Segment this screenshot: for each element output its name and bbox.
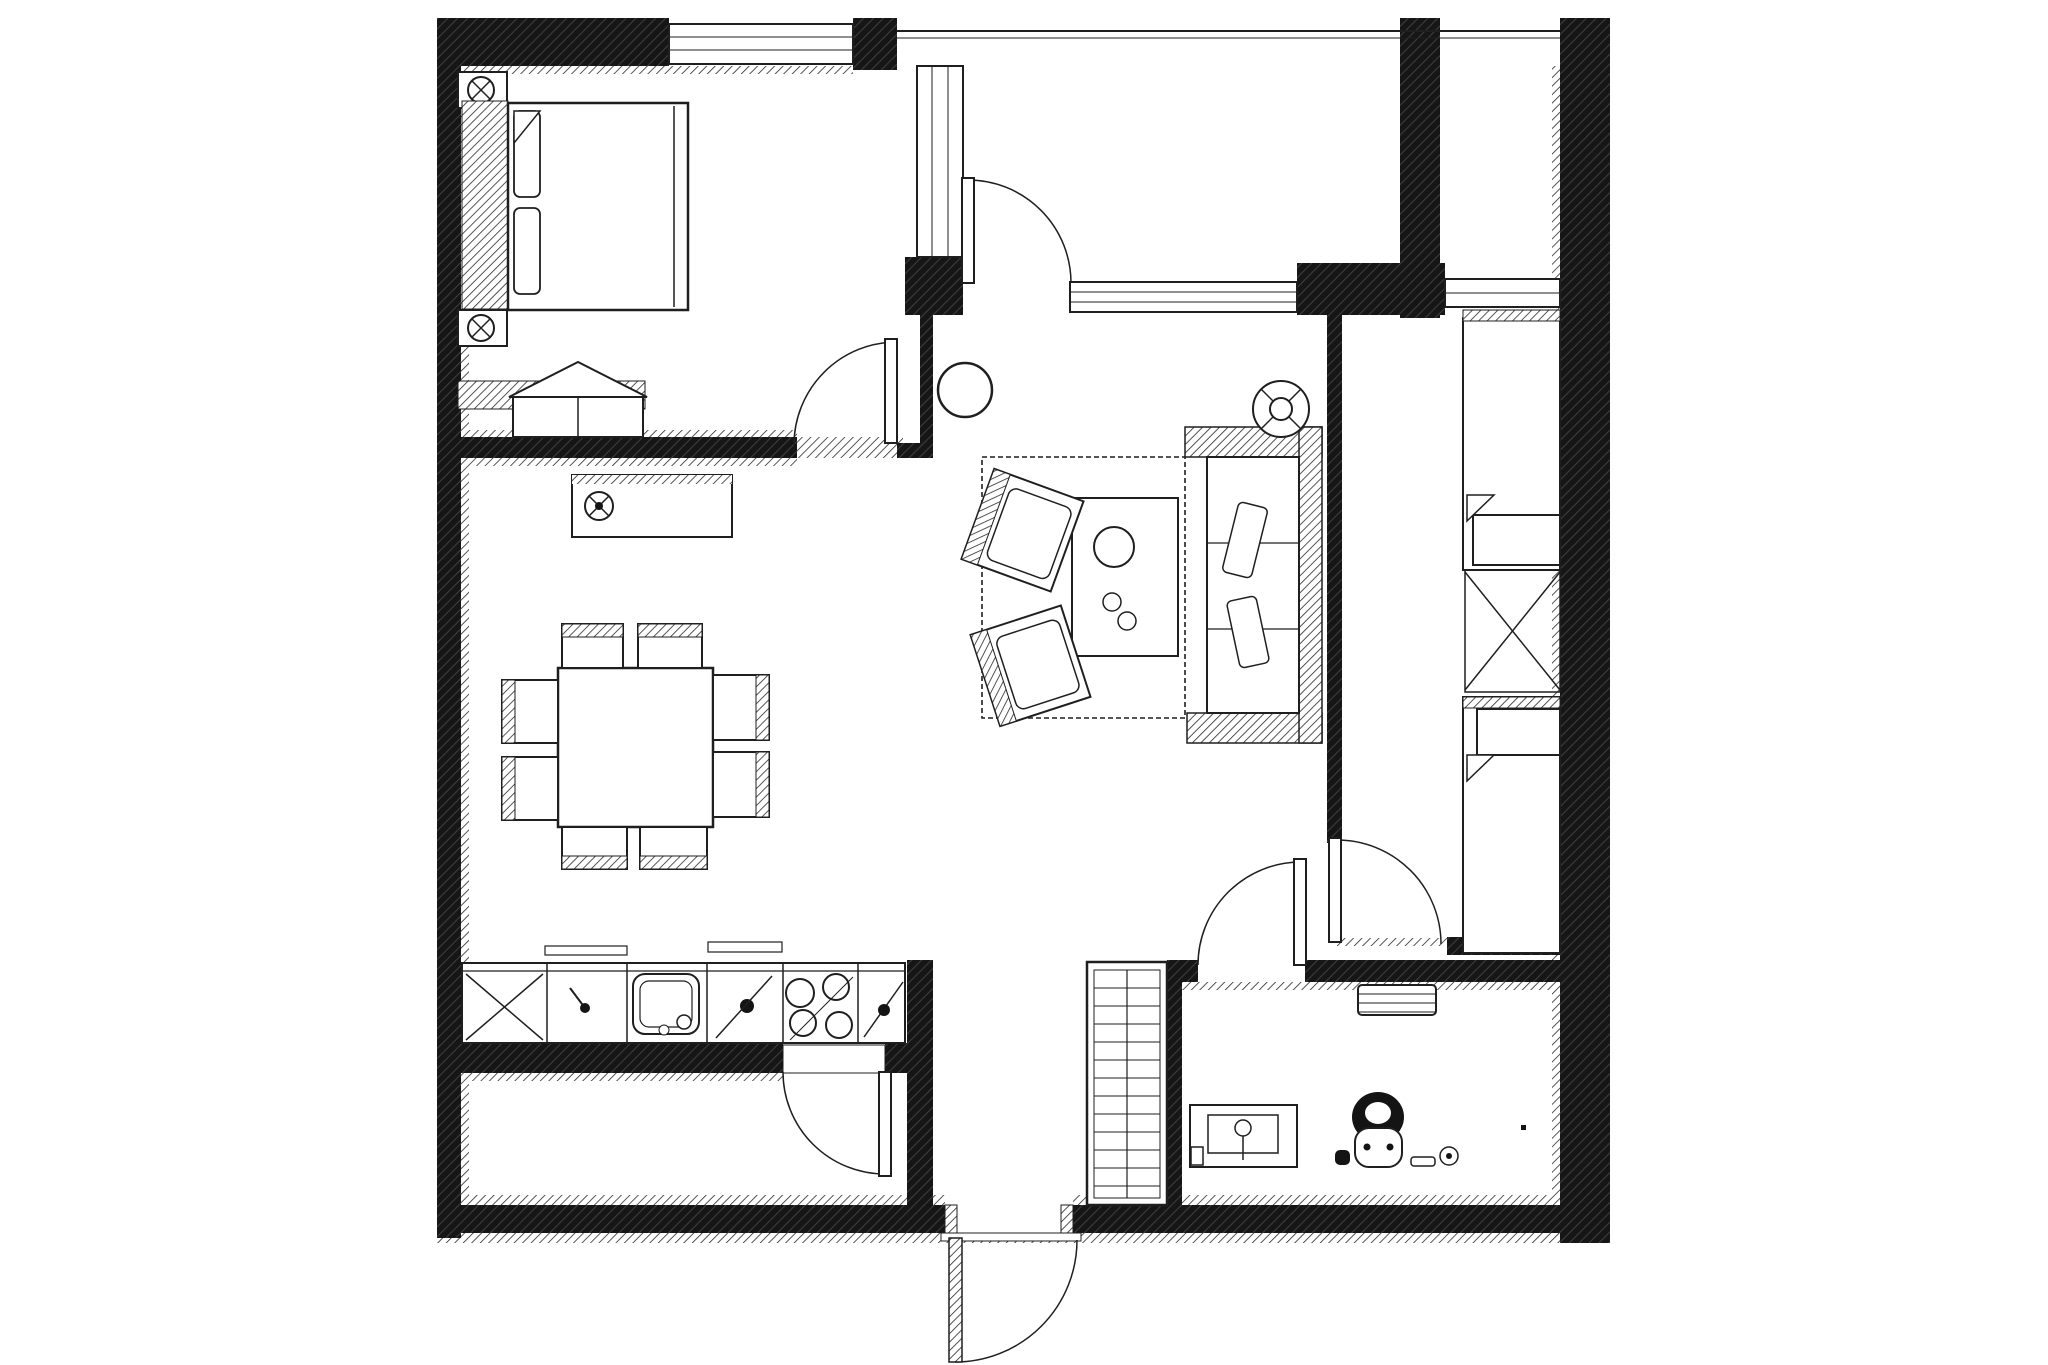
console-lamp-dot xyxy=(595,502,603,510)
coffee-table-decor-2 xyxy=(1103,593,1121,611)
living-east-wall xyxy=(1327,303,1342,843)
right-wall-inner-edge xyxy=(1552,66,1560,1195)
entrance-door-jamb-right xyxy=(1061,1205,1073,1233)
entrance-door-jamb-left xyxy=(945,1205,957,1233)
bedroom-door-post xyxy=(897,443,933,458)
console-shelf-edge xyxy=(572,475,732,484)
kitchen-tap-dot xyxy=(580,1003,590,1013)
dining-chair-bottom-2-back xyxy=(640,856,707,869)
bathroom-door-leaf xyxy=(1294,859,1306,965)
bathroom-post-mid xyxy=(1305,960,1340,982)
plant-circle xyxy=(938,363,992,417)
living-room-window xyxy=(1070,282,1297,312)
bathroom-side-tap xyxy=(1191,1147,1203,1165)
bottom-wall-top-edge-left xyxy=(437,1195,945,1205)
bedroom-top-window xyxy=(669,24,853,64)
counter-end-dot xyxy=(878,1004,890,1016)
bedroom-door-leaf xyxy=(885,339,897,443)
bathroom-post-left xyxy=(1167,960,1198,982)
upper-cabinet-1 xyxy=(545,946,627,955)
storage-door-leaf xyxy=(879,1072,891,1176)
wardrobe-bed-lower-pillow xyxy=(1477,709,1560,755)
toilet-dot-2 xyxy=(1387,1144,1394,1151)
kitchen-back-wall xyxy=(457,1043,783,1073)
dining-chair-right-2-back xyxy=(756,752,769,817)
living-window-header xyxy=(1297,263,1445,315)
dining-chair-right-1-back xyxy=(756,675,769,740)
wardrobe-door-leaf xyxy=(1329,838,1341,942)
sofa-backrest xyxy=(1299,427,1322,743)
bottom-wall-left xyxy=(437,1205,945,1233)
bathroom-west-wall xyxy=(1167,982,1182,1205)
top-wall-post xyxy=(853,18,897,70)
stove-burner-4 xyxy=(826,1012,852,1038)
hall-west-wall xyxy=(907,960,933,1205)
bed-headboard xyxy=(462,101,508,309)
kitchen-sink-drain xyxy=(677,1015,691,1029)
wardrobe-door-closed-line xyxy=(1337,938,1447,946)
upper-cabinet-2 xyxy=(708,942,782,952)
entrance-door-leaf xyxy=(949,1238,962,1362)
top-wall-bedroom xyxy=(437,18,669,66)
dining-chair-top-1-back xyxy=(562,624,623,637)
top-wall-inner-edge xyxy=(461,66,853,74)
right-wall xyxy=(1560,18,1610,1243)
balcony-window-post xyxy=(905,257,963,315)
dining-chair-left-1-back xyxy=(502,680,515,743)
wardrobe-bed-upper-edge xyxy=(1463,310,1560,321)
bedroom-wall-bottom-edge xyxy=(461,458,797,466)
coffee-table-decor-3 xyxy=(1118,612,1136,630)
bed-pillow-2 xyxy=(514,208,540,294)
towel-radiator xyxy=(1358,985,1436,1015)
living-west-wall xyxy=(920,313,933,445)
dining-chair-bottom-1-back xyxy=(562,856,627,869)
stove-burner-2 xyxy=(823,974,849,1000)
stove-burner-3 xyxy=(790,1010,816,1036)
bottom-wall-right xyxy=(1073,1205,1610,1233)
bathroom-shelf-item xyxy=(1411,1157,1435,1166)
wardrobe-bed-lower-edge xyxy=(1463,697,1560,708)
dining-chair-top-2-back xyxy=(638,624,702,637)
bathroom-north-wall xyxy=(1340,960,1610,982)
floor-lamp-inner xyxy=(1270,398,1292,420)
dining-table xyxy=(558,668,713,827)
stove-burner-1 xyxy=(786,979,814,1007)
storage-door-threshold xyxy=(783,1045,885,1073)
coffee-table-decor-1 xyxy=(1094,527,1134,567)
balcony-door-leaf xyxy=(962,178,974,283)
bedroom-balcony-window xyxy=(917,66,963,257)
toilet-tank-hole xyxy=(1365,1102,1391,1124)
sofa-seat xyxy=(1207,457,1299,713)
wardrobe-bed-upper-pillow xyxy=(1473,515,1560,565)
dining-chair-left-2-back xyxy=(502,757,515,820)
floor-drain-dot xyxy=(1446,1153,1452,1159)
worktop-dot xyxy=(740,999,754,1013)
bedroom-south-wall xyxy=(461,437,797,458)
bathroom-sink-tap-icon xyxy=(1235,1120,1251,1136)
bathroom-dot xyxy=(1521,1125,1526,1130)
toilet-dot-1 xyxy=(1364,1144,1371,1151)
bathroom-bin xyxy=(1335,1150,1350,1165)
kitchen-wall-bottom-edge xyxy=(457,1073,783,1081)
floor-plan-svg xyxy=(0,0,2048,1365)
floor-plan-canvas xyxy=(0,0,2048,1365)
coffee-table xyxy=(1072,498,1178,656)
toilet-bowl xyxy=(1355,1128,1402,1167)
kitchen-sink-drain-2 xyxy=(659,1025,669,1035)
